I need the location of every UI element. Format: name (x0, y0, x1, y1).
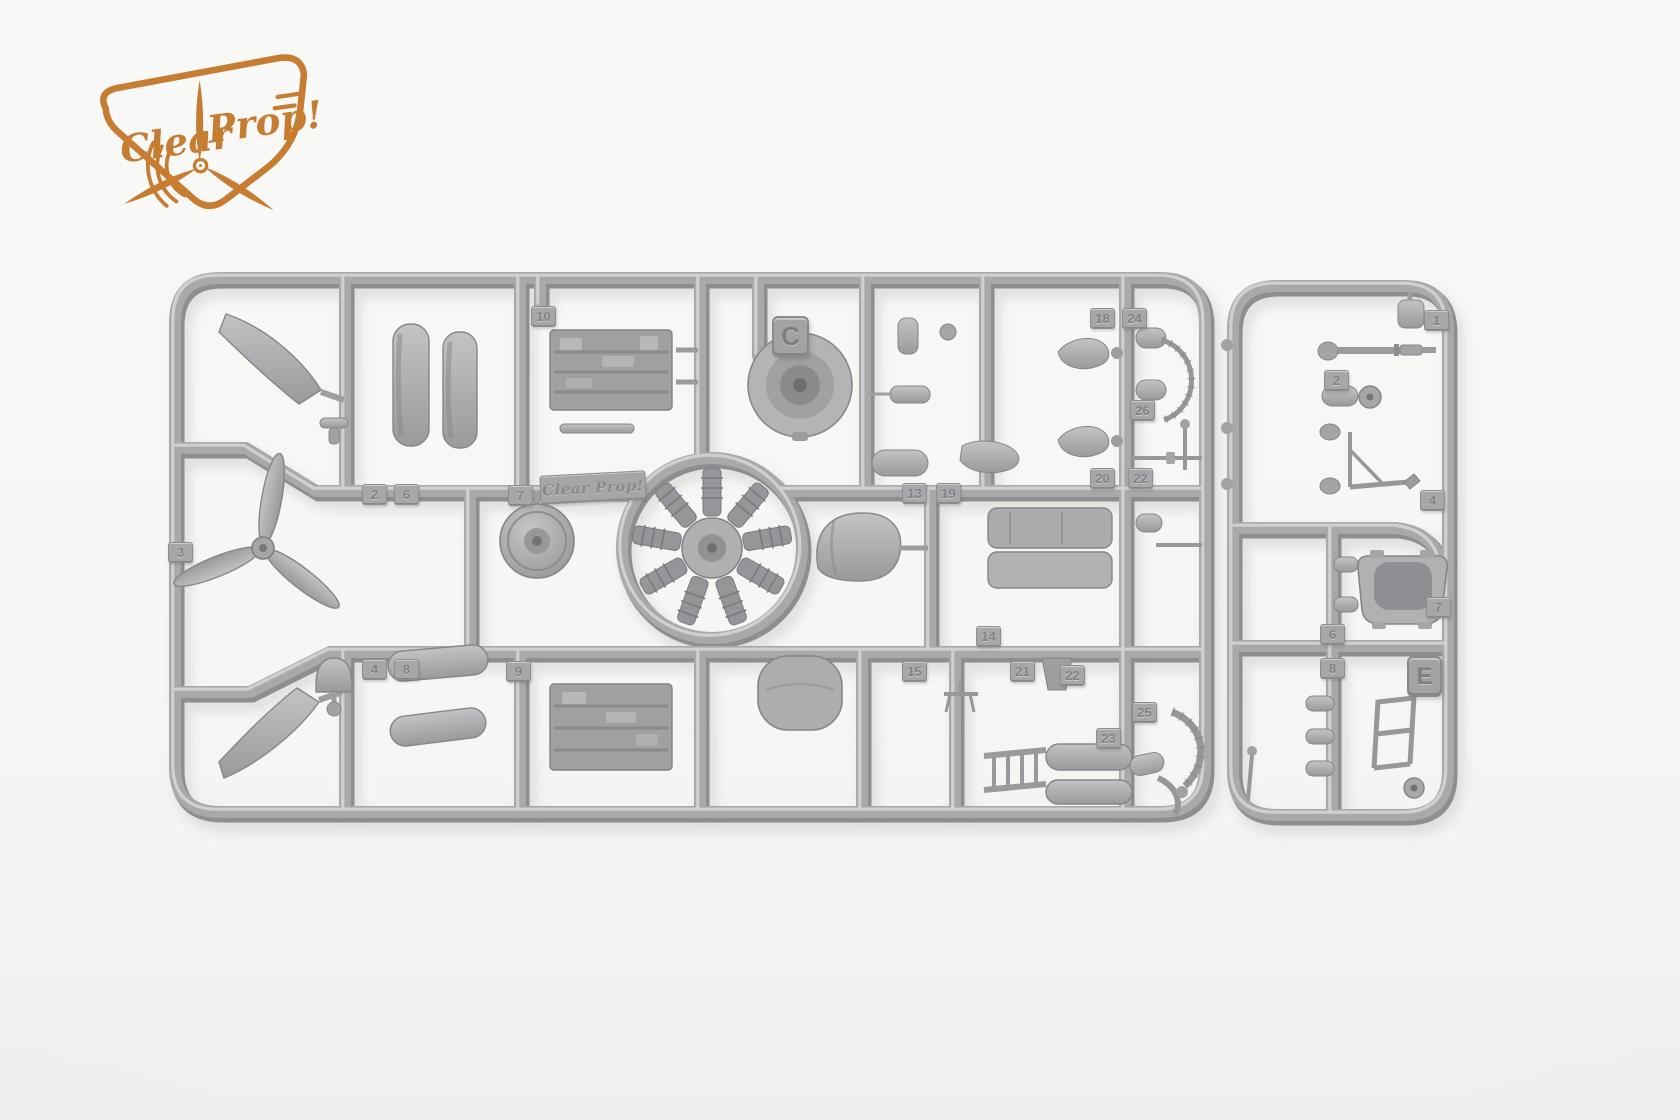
part-number-tag-9: 9 (506, 661, 531, 682)
part-number-tag-6: 6 (1320, 624, 1345, 645)
part-number-tag-3: 3 (168, 542, 193, 563)
part-number-tag-7: 7 (1426, 597, 1451, 618)
part-number-tag-23: 23 (1096, 728, 1121, 749)
part-number-tag-8: 8 (1320, 658, 1345, 679)
part-number-tag-19: 19 (936, 483, 961, 504)
part-number-tag-25: 25 (1132, 702, 1157, 723)
part-number-tag-2: 2 (1324, 370, 1349, 391)
product-photo: Clear Prop! C E Clear Prop! 102671319318… (0, 0, 1680, 1120)
part-number-tag-21: 21 (1010, 661, 1035, 682)
part-number-tag-15: 15 (902, 661, 927, 682)
part-number-tag-20: 20 (1090, 468, 1115, 489)
part-number-tag-8: 8 (394, 659, 419, 680)
part-number-tag-13: 13 (902, 483, 927, 504)
sprue-letter-tag-e: E (1407, 656, 1442, 697)
part-number-tag-22: 22 (1128, 468, 1153, 489)
part-number-tag-1: 1 (1424, 310, 1449, 331)
part-number-tag-22: 22 (1060, 665, 1085, 686)
part-number-tag-14: 14 (976, 626, 1001, 647)
part-number-tag-18: 18 (1090, 308, 1115, 329)
part-number-tag-7: 7 (508, 485, 533, 506)
part-number-tag-4: 4 (362, 659, 387, 680)
sprue-letter-tag-c: C (772, 316, 809, 357)
part-number-tag-4: 4 (1420, 490, 1445, 511)
part-number-tag-2: 2 (362, 484, 387, 505)
part-number-tag-24: 24 (1122, 308, 1147, 329)
tag-layer: C E Clear Prop! 102671319318242620221415… (0, 0, 1680, 1120)
molded-brand-tag: Clear Prop! (539, 470, 646, 505)
part-number-tag-26: 26 (1130, 400, 1155, 421)
part-number-tag-10: 10 (531, 306, 556, 327)
part-number-tag-6: 6 (394, 484, 419, 505)
